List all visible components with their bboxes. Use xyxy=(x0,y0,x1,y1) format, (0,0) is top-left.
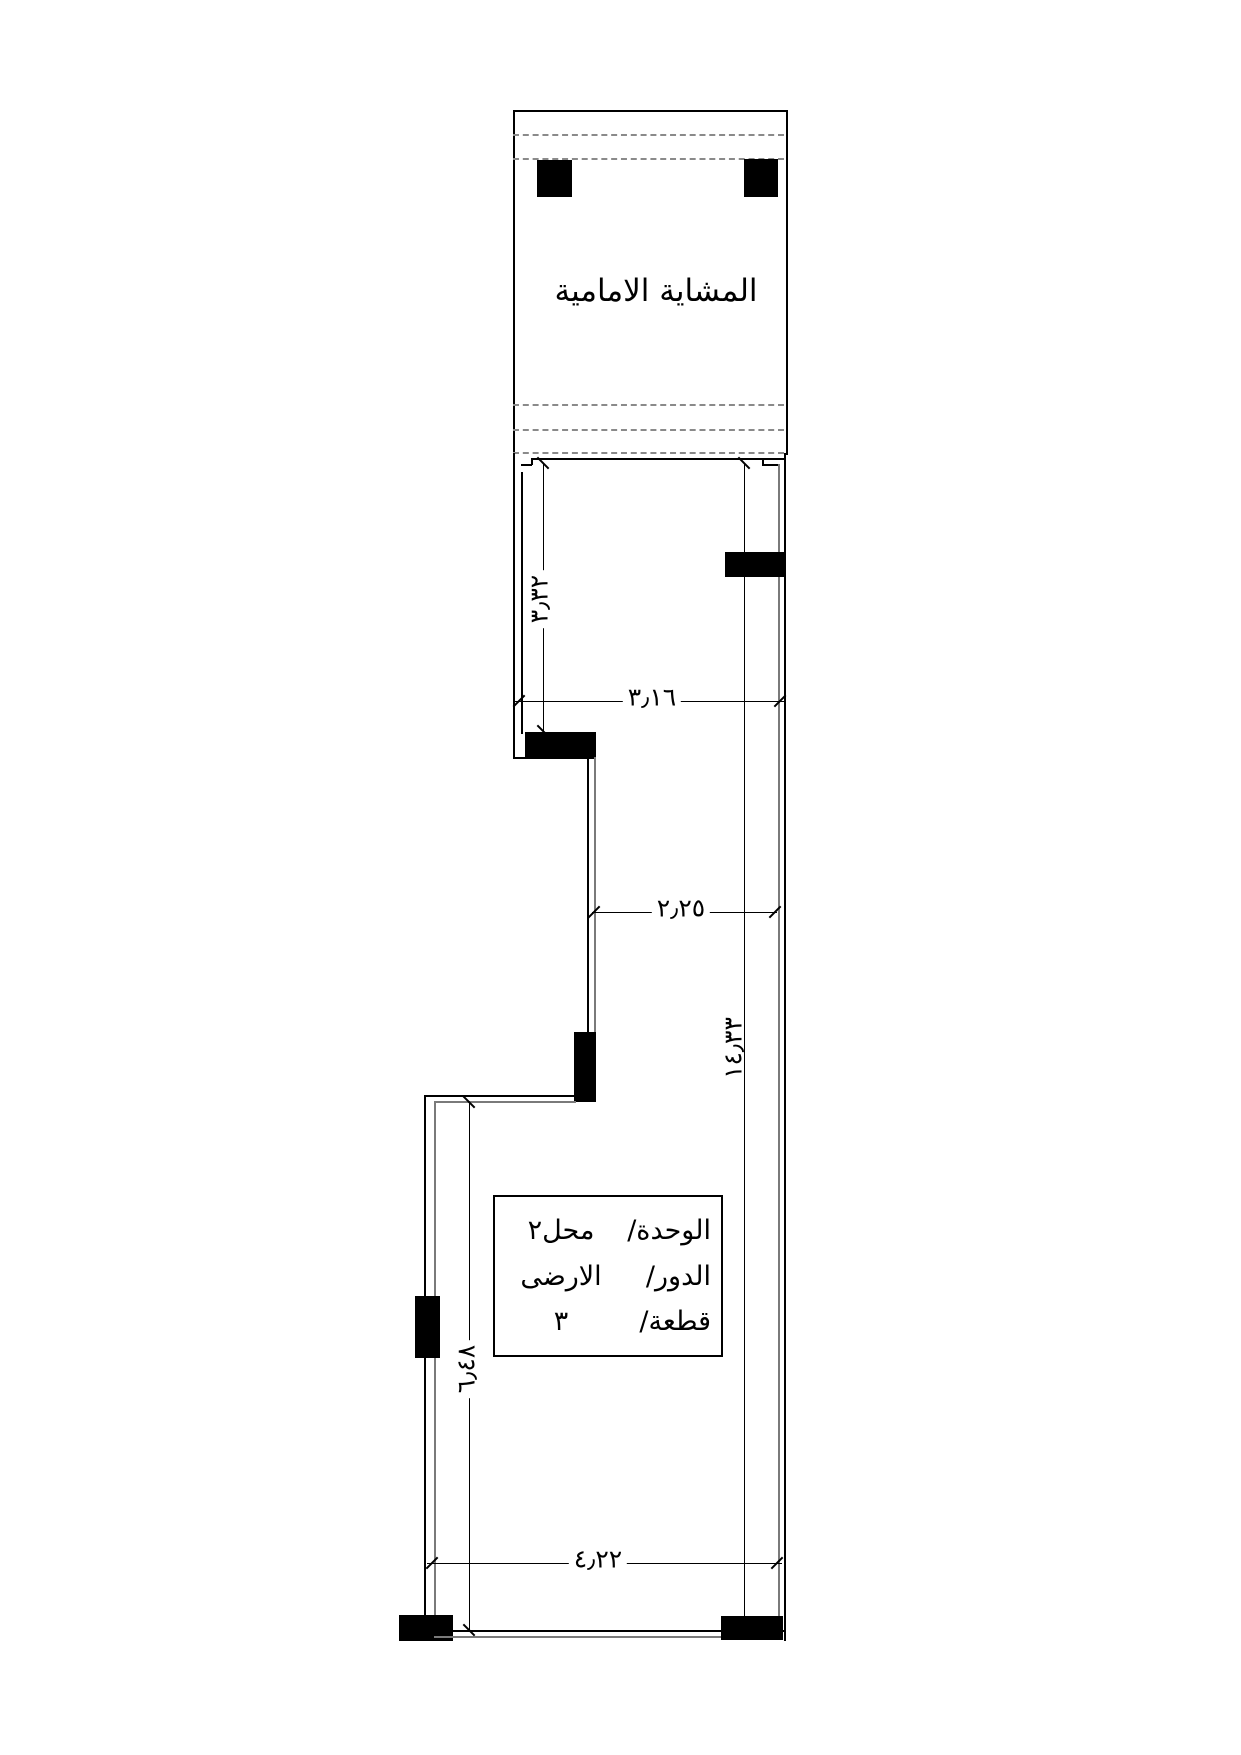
plot-label: قطعة/ xyxy=(639,1308,711,1335)
walkway-dashed-line xyxy=(513,134,784,136)
wall-step2-bottom xyxy=(434,1101,576,1103)
wall-notch-topleft xyxy=(521,464,532,466)
plot-value: ٣ xyxy=(505,1308,617,1335)
dimension-text-upper-room-width: ٣٫١٦ xyxy=(623,682,681,712)
wall-lower-left-inner xyxy=(434,1101,436,1631)
floor-label: الدور/ xyxy=(646,1263,711,1290)
dimension-text-lower-left-height: ٦٫٤٨ xyxy=(451,1340,481,1398)
column-right-wall xyxy=(725,552,786,577)
wall-right-outer xyxy=(784,453,786,1641)
wall-top xyxy=(531,458,785,460)
unit-label: الوحدة/ xyxy=(627,1217,711,1244)
floor-value: الارضى xyxy=(505,1263,617,1290)
column-walkway-left xyxy=(537,160,572,197)
walkway-label: المشاية الامامية xyxy=(554,273,757,309)
wall-step1-bottom-face xyxy=(513,757,596,759)
wall-right-inner xyxy=(778,464,780,1630)
column-lower-left-wall xyxy=(415,1296,440,1358)
wall-step2-top xyxy=(424,1095,576,1097)
column-step-2 xyxy=(574,1032,596,1102)
floor-plan-canvas: المشاية الامامية ٣٫٣٢ ٣٫١٦ ٢٫٢٥ ١٤٫٣٣ xyxy=(0,0,1241,1755)
unit-row-plot: قطعة/ ٣ xyxy=(505,1308,711,1335)
walkway-dashed-line xyxy=(513,429,784,431)
unit-info-box: الوحدة/ محل٢ الدور/ الارضى قطعة/ ٣ xyxy=(493,1195,723,1357)
column-step-1 xyxy=(525,732,596,757)
unit-row-floor: الدور/ الارضى xyxy=(505,1263,711,1290)
dimension-text-bottom-width: ٤٫٢٢ xyxy=(569,1544,627,1574)
dimension-text-middle-width: ٢٫٢٥ xyxy=(652,893,710,923)
column-walkway-right xyxy=(744,159,778,197)
column-bottom-right xyxy=(721,1616,783,1640)
dimension-text-overall-height: ١٤٫٣٣ xyxy=(719,1017,747,1079)
walkway-dashed-line xyxy=(513,452,784,454)
wall-lower-left-outer xyxy=(424,1095,426,1641)
wall-notch-topright xyxy=(762,464,779,466)
unit-value: محل٢ xyxy=(505,1217,617,1244)
wall-left-upper-outer xyxy=(513,453,515,759)
walkway-dashed-line xyxy=(513,404,784,406)
unit-row-unit: الوحدة/ محل٢ xyxy=(505,1217,711,1244)
dimension-text-upper-room-height: ٣٫٣٢ xyxy=(524,570,554,628)
wall-mid-left-inner xyxy=(594,757,596,1033)
wall-mid-left-outer xyxy=(587,757,589,1033)
